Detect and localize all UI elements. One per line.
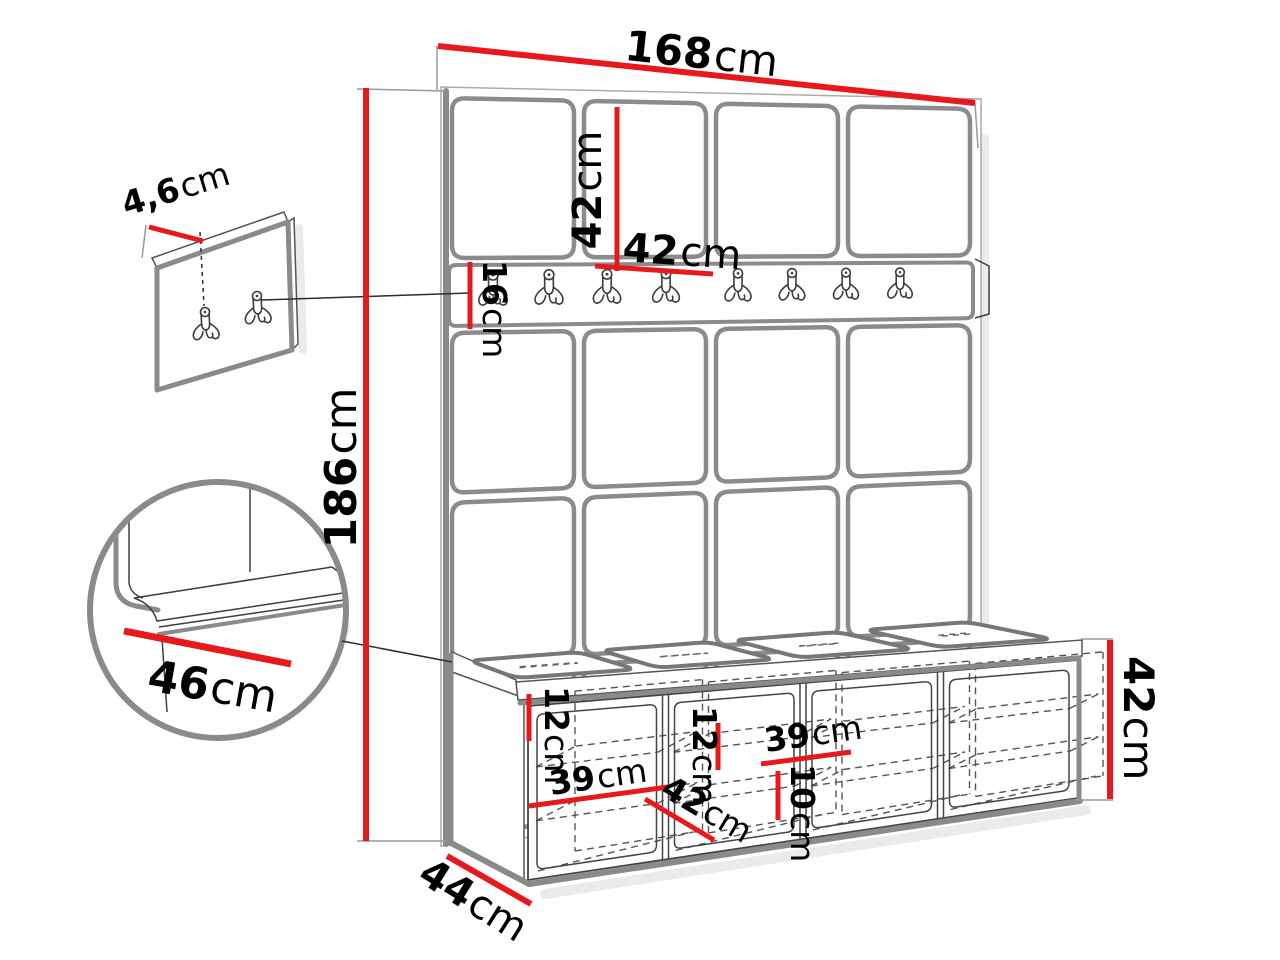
dim-panel-thickness: 4,6cm: [117, 154, 234, 224]
upholstered-panel: [584, 493, 706, 654]
upholstered-panel: [848, 325, 970, 476]
upholstered-panel: [584, 329, 706, 487]
small-panel-shadow: [299, 228, 303, 350]
upholstered-panel: [848, 482, 970, 636]
dim-panel-height: 42cm: [565, 131, 611, 250]
hook-screw-dot: [899, 271, 901, 273]
upholstered-panel: [716, 327, 838, 481]
detail-right-line: [352, 607, 355, 655]
dim-total-width: 168cm: [623, 21, 781, 86]
height-tick-top: [357, 89, 446, 91]
hook-screw-dot: [548, 273, 551, 276]
dim-total-height: 186cm: [316, 388, 367, 549]
upholstered-panel: [452, 498, 574, 662]
dim-bench-height: 42cm: [1114, 656, 1163, 780]
small-panel-front: [157, 222, 292, 390]
furniture-dimension-diagram: 168cm 186cm 42cm 42cm 16cm 4,6cm 46cm 44…: [0, 0, 1280, 960]
thickness-tick: [142, 225, 146, 258]
diagram-stage: 168cm 186cm 42cm 42cm 16cm 4,6cm 46cm 44…: [0, 0, 1280, 960]
hook-screw-dot: [791, 272, 794, 275]
upholstered-panel: [848, 107, 970, 256]
detail-pointer-line: [342, 641, 452, 662]
upholstered-panel: [452, 98, 574, 258]
dim-shelf-spacing-mid: 12cm: [685, 706, 724, 804]
upholstered-panel: [716, 488, 838, 645]
dim-panel-width: 42cm: [621, 225, 743, 279]
hook-screw-dot: [606, 273, 609, 276]
thickness-line: [149, 227, 203, 241]
mounting-panel-detail: [152, 212, 298, 390]
dim-plinth-height: 10cm: [783, 764, 822, 862]
dim-rail-height: 16cm: [475, 260, 514, 358]
hook-screw-dot: [845, 271, 848, 274]
